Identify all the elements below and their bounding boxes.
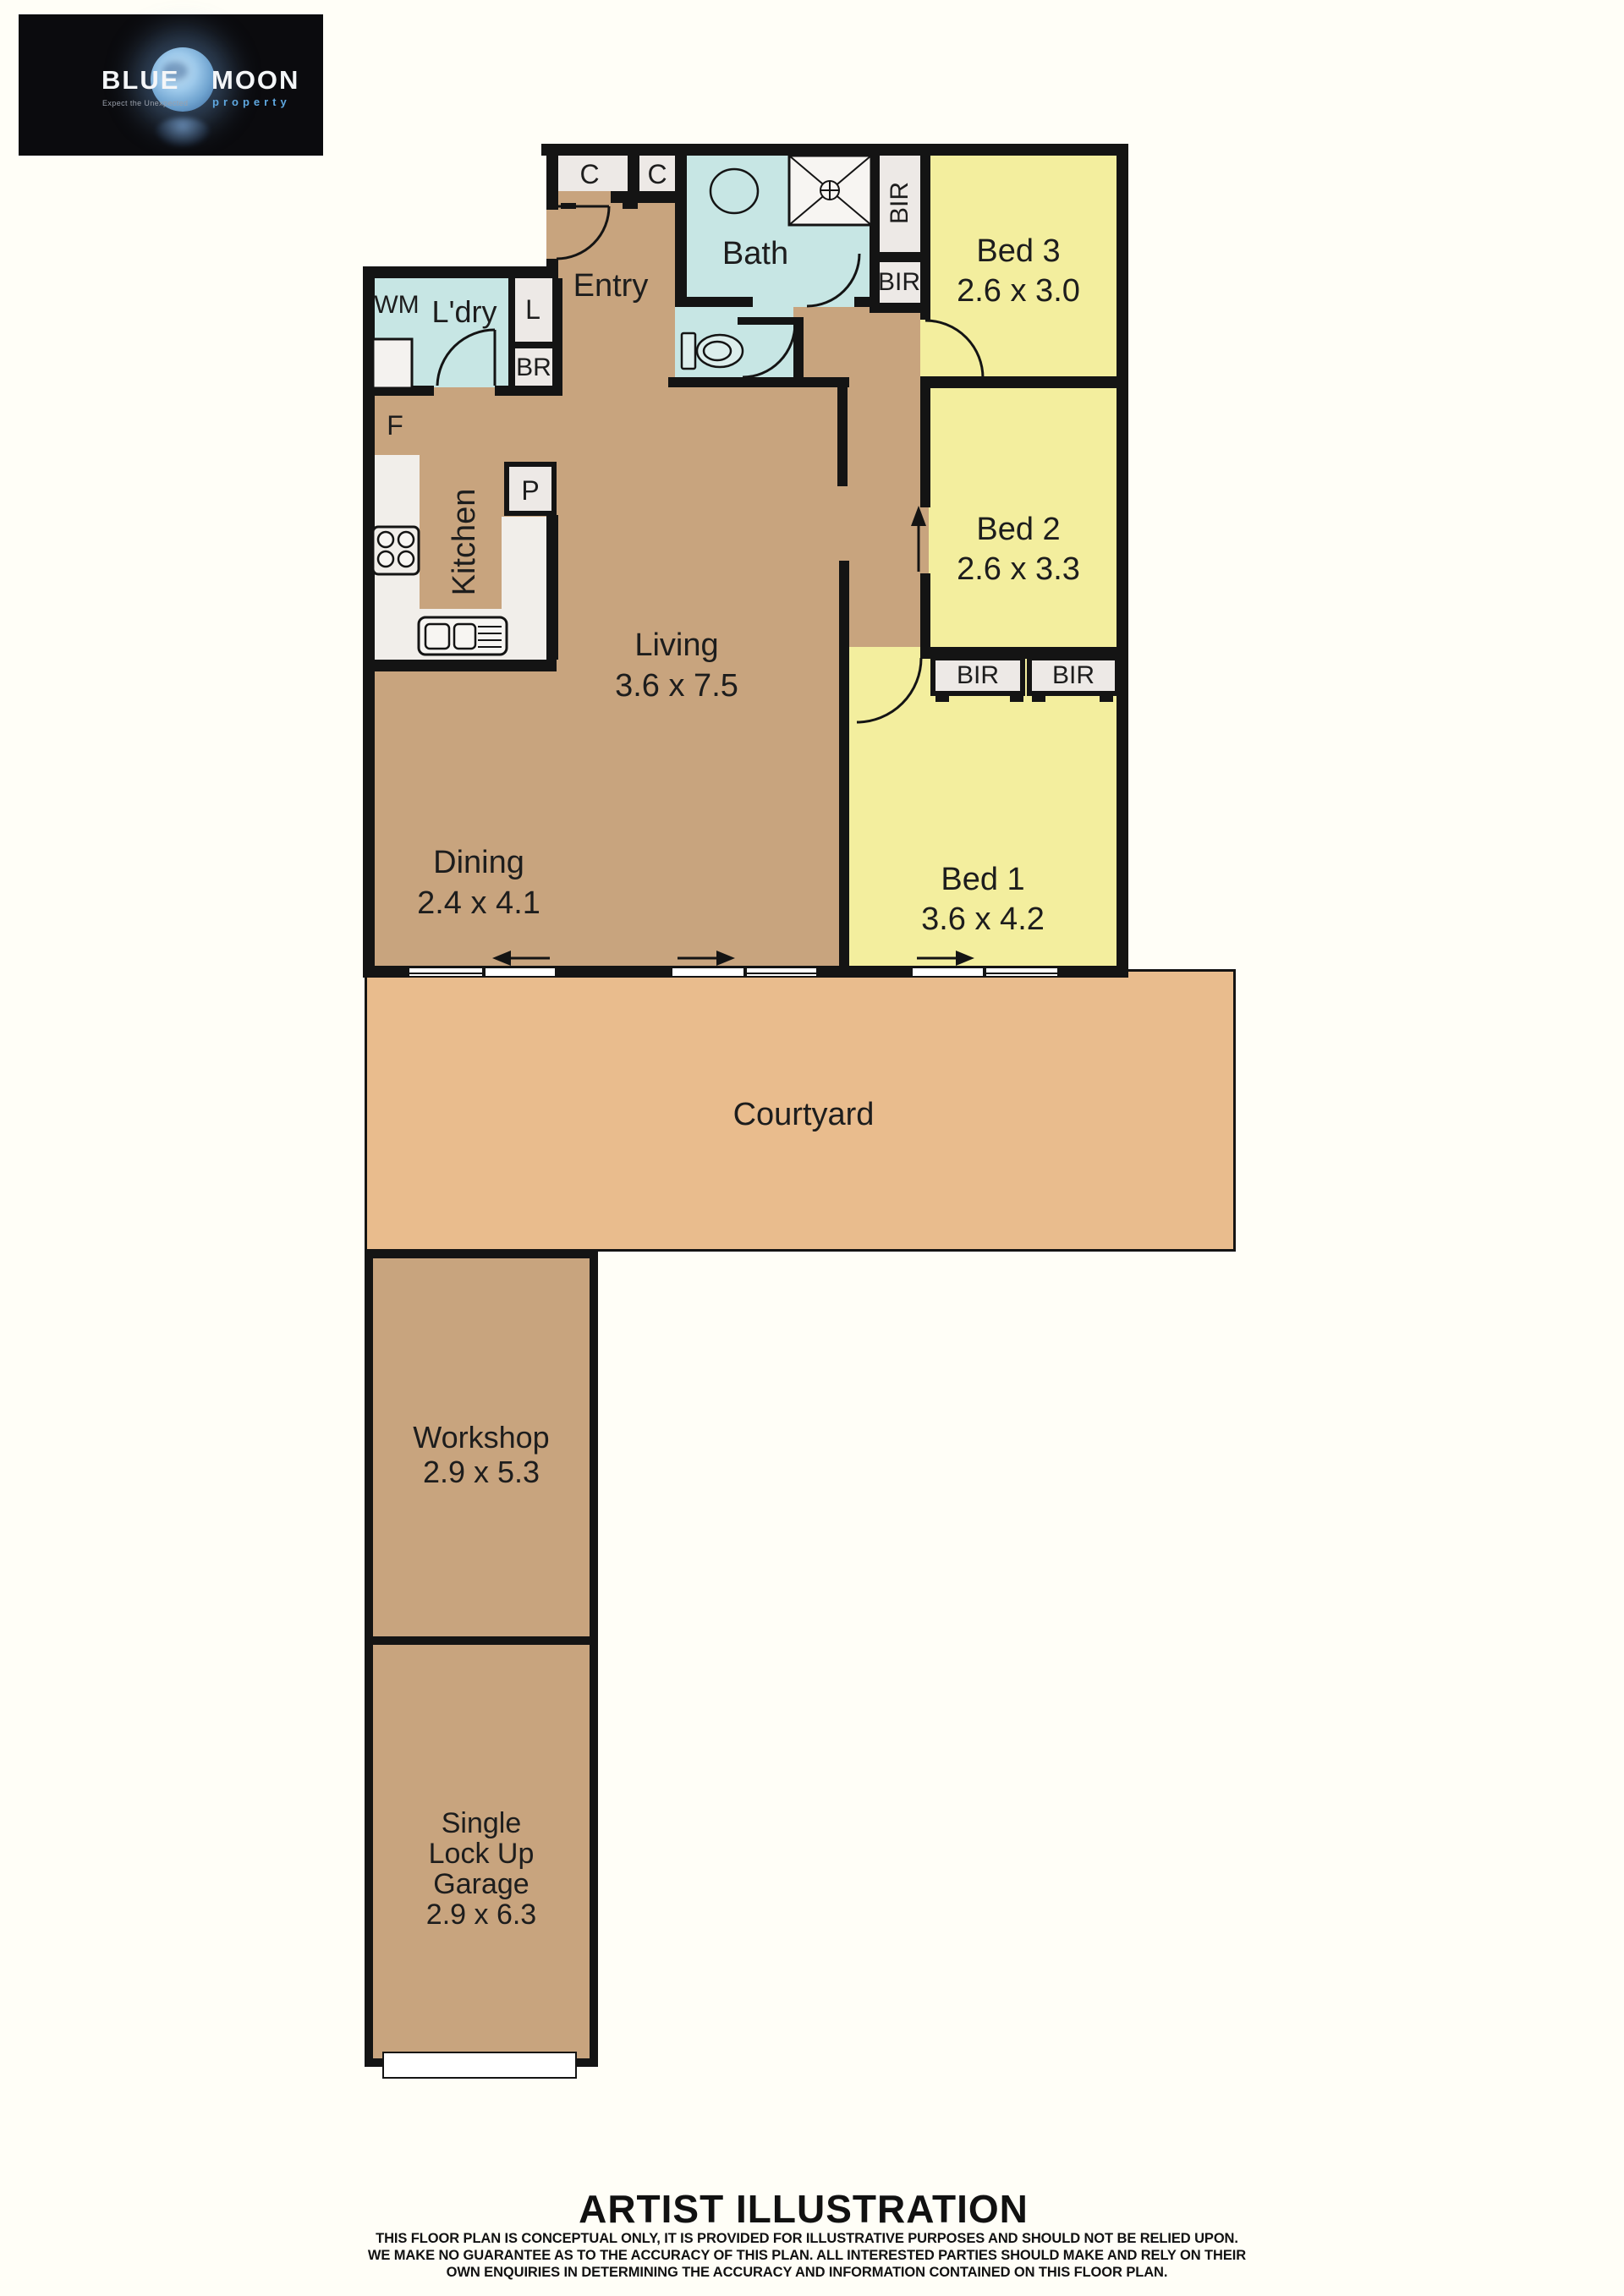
wall-kitchen-bottom: [363, 660, 557, 671]
sliding-door-living-b: [745, 967, 818, 978]
wall-c-divider: [628, 156, 639, 193]
wall-top: [541, 144, 1128, 156]
washing-machine-label: WM: [374, 293, 419, 318]
bir3-label: BIR: [957, 663, 999, 688]
wall-left: [363, 266, 375, 978]
living-dims: 3.6 x 7.5: [615, 670, 738, 702]
garage-door: [382, 2052, 577, 2079]
logo-tagline: Expect the Unexpected: [102, 99, 188, 107]
kitchen-counter-right: [502, 517, 546, 609]
wall-ldry-top: [363, 266, 558, 278]
bed3-label: Bed 3: [976, 235, 1060, 267]
bed1-dims: 3.6 x 4.2: [921, 903, 1045, 935]
dining-label: Dining: [433, 847, 524, 879]
workshop-label: Workshop: [413, 1422, 549, 1453]
wall-bed3-bottom: [920, 376, 1128, 388]
garage-label-3: Garage: [433, 1870, 529, 1899]
bir4-label: BIR: [1052, 663, 1095, 688]
floorplan-page: BLUE MOON Expect the Unexpected property: [0, 0, 1624, 2296]
laundry-label: L'dry: [432, 297, 497, 327]
sliding-door-dining-b: [484, 967, 557, 978]
garage-dims: 2.9 x 6.3: [426, 1900, 536, 1929]
wall-bir-divider: [880, 252, 920, 262]
disclaimer-line-2: WE MAKE NO GUARANTEE AS TO THE ACCURACY …: [368, 2248, 1246, 2264]
wall-toilet-header: [738, 317, 802, 325]
wall-bath-left: [675, 156, 687, 306]
artist-illustration-title: ARTIST ILLUSTRATION: [579, 2186, 1029, 2232]
logo-word-moon: MOON: [211, 65, 299, 96]
wall-kitchen-right: [546, 515, 558, 660]
courtyard-label: Courtyard: [733, 1099, 875, 1131]
bir-stub-4: [1100, 696, 1113, 702]
logo-word-blue: BLUE: [101, 65, 179, 96]
workshop-dims: 2.9 x 5.3: [423, 1457, 540, 1488]
wall-bath-bottom-b: [854, 297, 880, 307]
sliding-door-dining-a: [408, 967, 484, 978]
wall-ldry-col-divider: [508, 278, 515, 386]
garage-label-2: Lock Up: [429, 1839, 535, 1868]
bir-stub-1: [935, 696, 949, 702]
closet-c1-label: C: [579, 161, 599, 188]
wall-corridor-b: [839, 561, 849, 978]
bed2-dims: 2.6 x 3.3: [957, 553, 1080, 585]
pantry-label: P: [521, 477, 539, 504]
bath-label: Bath: [722, 238, 788, 270]
sliding-door-bed1-a: [911, 967, 985, 978]
moon-reflection: [156, 118, 210, 146]
kitchen-label: Kitchen: [448, 489, 480, 596]
linen-label: L: [525, 296, 540, 323]
sliding-door-bed1-b: [985, 967, 1059, 978]
bir1-label: BIR: [887, 182, 913, 224]
sliding-door-living-a: [671, 967, 745, 978]
wall-bed3-left: [920, 156, 930, 320]
bir2-label: BIR: [878, 270, 920, 295]
bir-stub-3: [1032, 696, 1045, 702]
living-label: Living: [634, 629, 718, 661]
wall-bath-bottom-a: [675, 297, 753, 307]
wall-ldry-bottom-a: [363, 386, 434, 396]
wall-stub-c2: [623, 203, 638, 209]
wall-stub-c1: [561, 203, 576, 209]
wall-bed2-left-b: [920, 573, 930, 649]
outside-notch: [321, 127, 546, 268]
wall-closets-bottom-a: [546, 191, 557, 203]
bed2-label: Bed 2: [976, 513, 1060, 545]
bed1-label: Bed 1: [941, 863, 1024, 896]
wall-corridor-a: [837, 387, 848, 486]
bed3-doorway: [920, 320, 929, 376]
wall-entry-left-b: [546, 259, 558, 278]
bed3-dims: 2.6 x 3.0: [957, 275, 1080, 307]
garage-label-1: Single: [442, 1809, 522, 1838]
agency-logo: BLUE MOON Expect the Unexpected property: [19, 14, 323, 156]
wall-toilet-bottom: [668, 377, 849, 387]
broom-label: BR: [516, 355, 551, 381]
kitchen-counter-bottom: [375, 609, 546, 660]
bir-stub-2: [1010, 696, 1023, 702]
closet-c2-label: C: [647, 161, 667, 188]
logo-subtitle: property: [212, 96, 291, 108]
wall-bed2-left-a: [920, 388, 930, 507]
dining-dims: 2.4 x 4.1: [417, 887, 540, 919]
fridge-label: F: [387, 412, 403, 439]
disclaimer-line-3: OWN ENQUIRIES IN DETERMINING THE ACCURAC…: [447, 2265, 1168, 2281]
wall-right: [1116, 144, 1128, 978]
entry-label: Entry: [573, 270, 649, 302]
wall-lbr-right: [552, 278, 562, 396]
disclaimer-line-1: THIS FLOOR PLAN IS CONCEPTUAL ONLY, IT I…: [376, 2231, 1238, 2247]
bath-doorway: [753, 297, 854, 307]
bath-floor: [687, 156, 870, 297]
